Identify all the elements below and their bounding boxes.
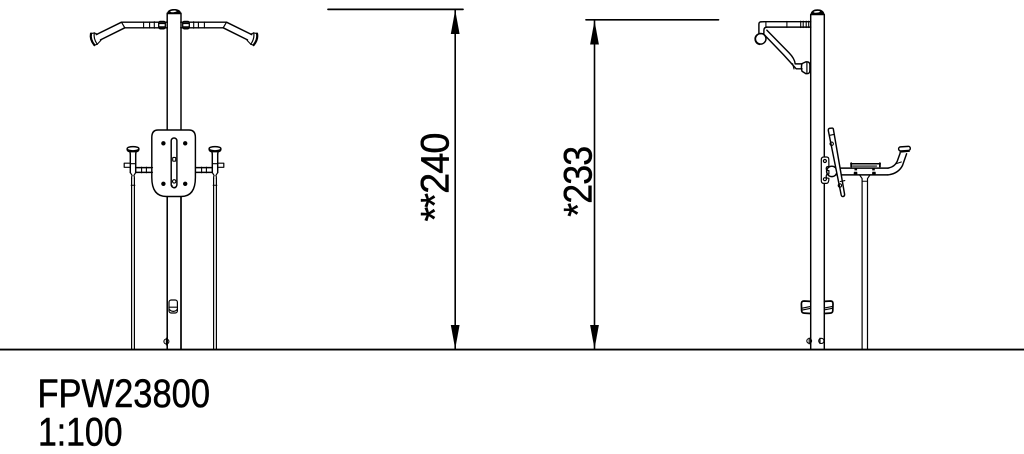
svg-text:*233: *233	[556, 147, 600, 217]
svg-text:**240: **240	[414, 134, 458, 222]
svg-text:FPW23800: FPW23800	[38, 372, 211, 416]
svg-text:1:100: 1:100	[38, 411, 123, 454]
